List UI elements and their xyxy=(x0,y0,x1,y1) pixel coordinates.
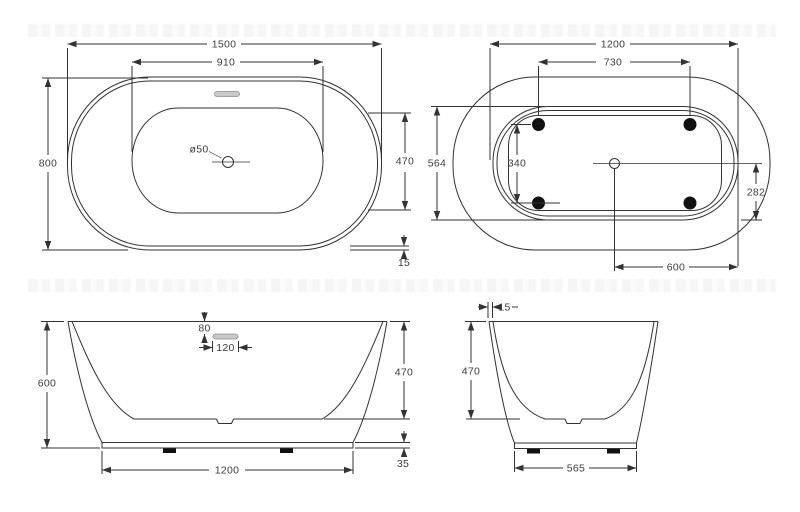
dim-label-rim-lip: 15 xyxy=(398,257,410,269)
dim-label-base-width: 564 xyxy=(428,158,446,170)
foot xyxy=(684,197,697,210)
overflow-slot xyxy=(215,92,240,97)
dim-label-base-length: 1200 xyxy=(601,39,626,51)
dim-basin-length: 910 xyxy=(132,57,323,153)
drain-notch xyxy=(565,419,582,424)
tub-outer-rim xyxy=(68,77,382,250)
dim-base-length: 1200 xyxy=(102,451,353,477)
dim-feet-span-width: 340 xyxy=(508,125,560,204)
bottom-view: 1200 730 564 340 xyxy=(428,39,770,274)
dim-feet-span-length: 730 xyxy=(539,57,691,117)
side-elevation-view: 15 470 565 xyxy=(462,302,658,475)
dim-overall-height: 600 xyxy=(38,322,100,449)
dim-label-overflow-drop: 80 xyxy=(198,323,210,335)
dim-base-width: 565 xyxy=(515,451,637,475)
overflow-slot xyxy=(213,334,238,339)
dim-label-drain-offset-width: 282 xyxy=(747,187,765,199)
bathtub-dimension-drawing: 1500 910 800 470 xyxy=(0,0,800,512)
dim-label-drain-offset-length: 600 xyxy=(667,262,685,274)
dim-label-overflow-length: 120 xyxy=(216,342,234,354)
dim-label-drain-diameter: ø50 xyxy=(190,144,209,156)
dim-label-plinth-height: 35 xyxy=(397,458,409,470)
feet-group xyxy=(163,449,293,454)
basin-outline xyxy=(132,108,323,213)
dim-label-feet-span-length: 730 xyxy=(604,57,622,69)
dim-overflow-length: 120 xyxy=(199,341,252,354)
foot xyxy=(607,449,620,454)
tub-rim-inner-edge xyxy=(72,81,378,246)
foot xyxy=(163,449,176,454)
dim-label-wall-thickness: 15 xyxy=(498,302,510,314)
basin-profile xyxy=(493,322,654,420)
feet-group xyxy=(527,449,620,454)
dim-label-basin-length: 910 xyxy=(217,57,235,69)
outer-wall-left xyxy=(489,322,515,444)
dim-label-base-length: 1200 xyxy=(215,465,240,477)
dim-wall-thickness: 15 xyxy=(478,302,518,319)
dim-label-base-width: 565 xyxy=(567,463,585,475)
foot xyxy=(527,449,540,454)
outer-wall-right xyxy=(637,322,659,444)
dim-label-basin-width: 470 xyxy=(396,156,414,168)
dim-rim-lip: 15 xyxy=(350,235,410,269)
dim-label-basin-depth: 470 xyxy=(462,366,480,378)
technical-drawing-sheet: 1500 910 800 470 xyxy=(0,0,800,512)
dim-label-basin-depth: 470 xyxy=(395,367,413,379)
front-elevation-view: 600 80 120 470 xyxy=(38,312,413,477)
dim-overflow-drop: 80 xyxy=(198,312,210,343)
foot xyxy=(684,118,697,131)
outer-wall-left xyxy=(68,322,102,443)
drain-leader-line xyxy=(209,152,222,159)
plinth xyxy=(515,443,637,449)
dim-label-overall-width: 800 xyxy=(39,158,57,170)
drain-notch xyxy=(217,419,234,424)
dim-label-overall-length: 1500 xyxy=(212,39,237,51)
plinth xyxy=(102,443,353,449)
dim-label-overall-height: 600 xyxy=(38,378,56,390)
top-view: 1500 910 800 470 xyxy=(39,39,414,270)
dim-drain-offset-length: 600 xyxy=(615,169,739,274)
foot xyxy=(280,449,293,454)
dim-label-feet-span-width: 340 xyxy=(508,158,526,170)
foot xyxy=(532,118,545,131)
dim-plinth-height: 35 xyxy=(355,431,410,470)
drawing-linework: 1500 910 800 470 xyxy=(38,39,770,477)
dim-drain-offset-width: 282 xyxy=(741,164,765,221)
outer-wall-right xyxy=(353,322,387,443)
